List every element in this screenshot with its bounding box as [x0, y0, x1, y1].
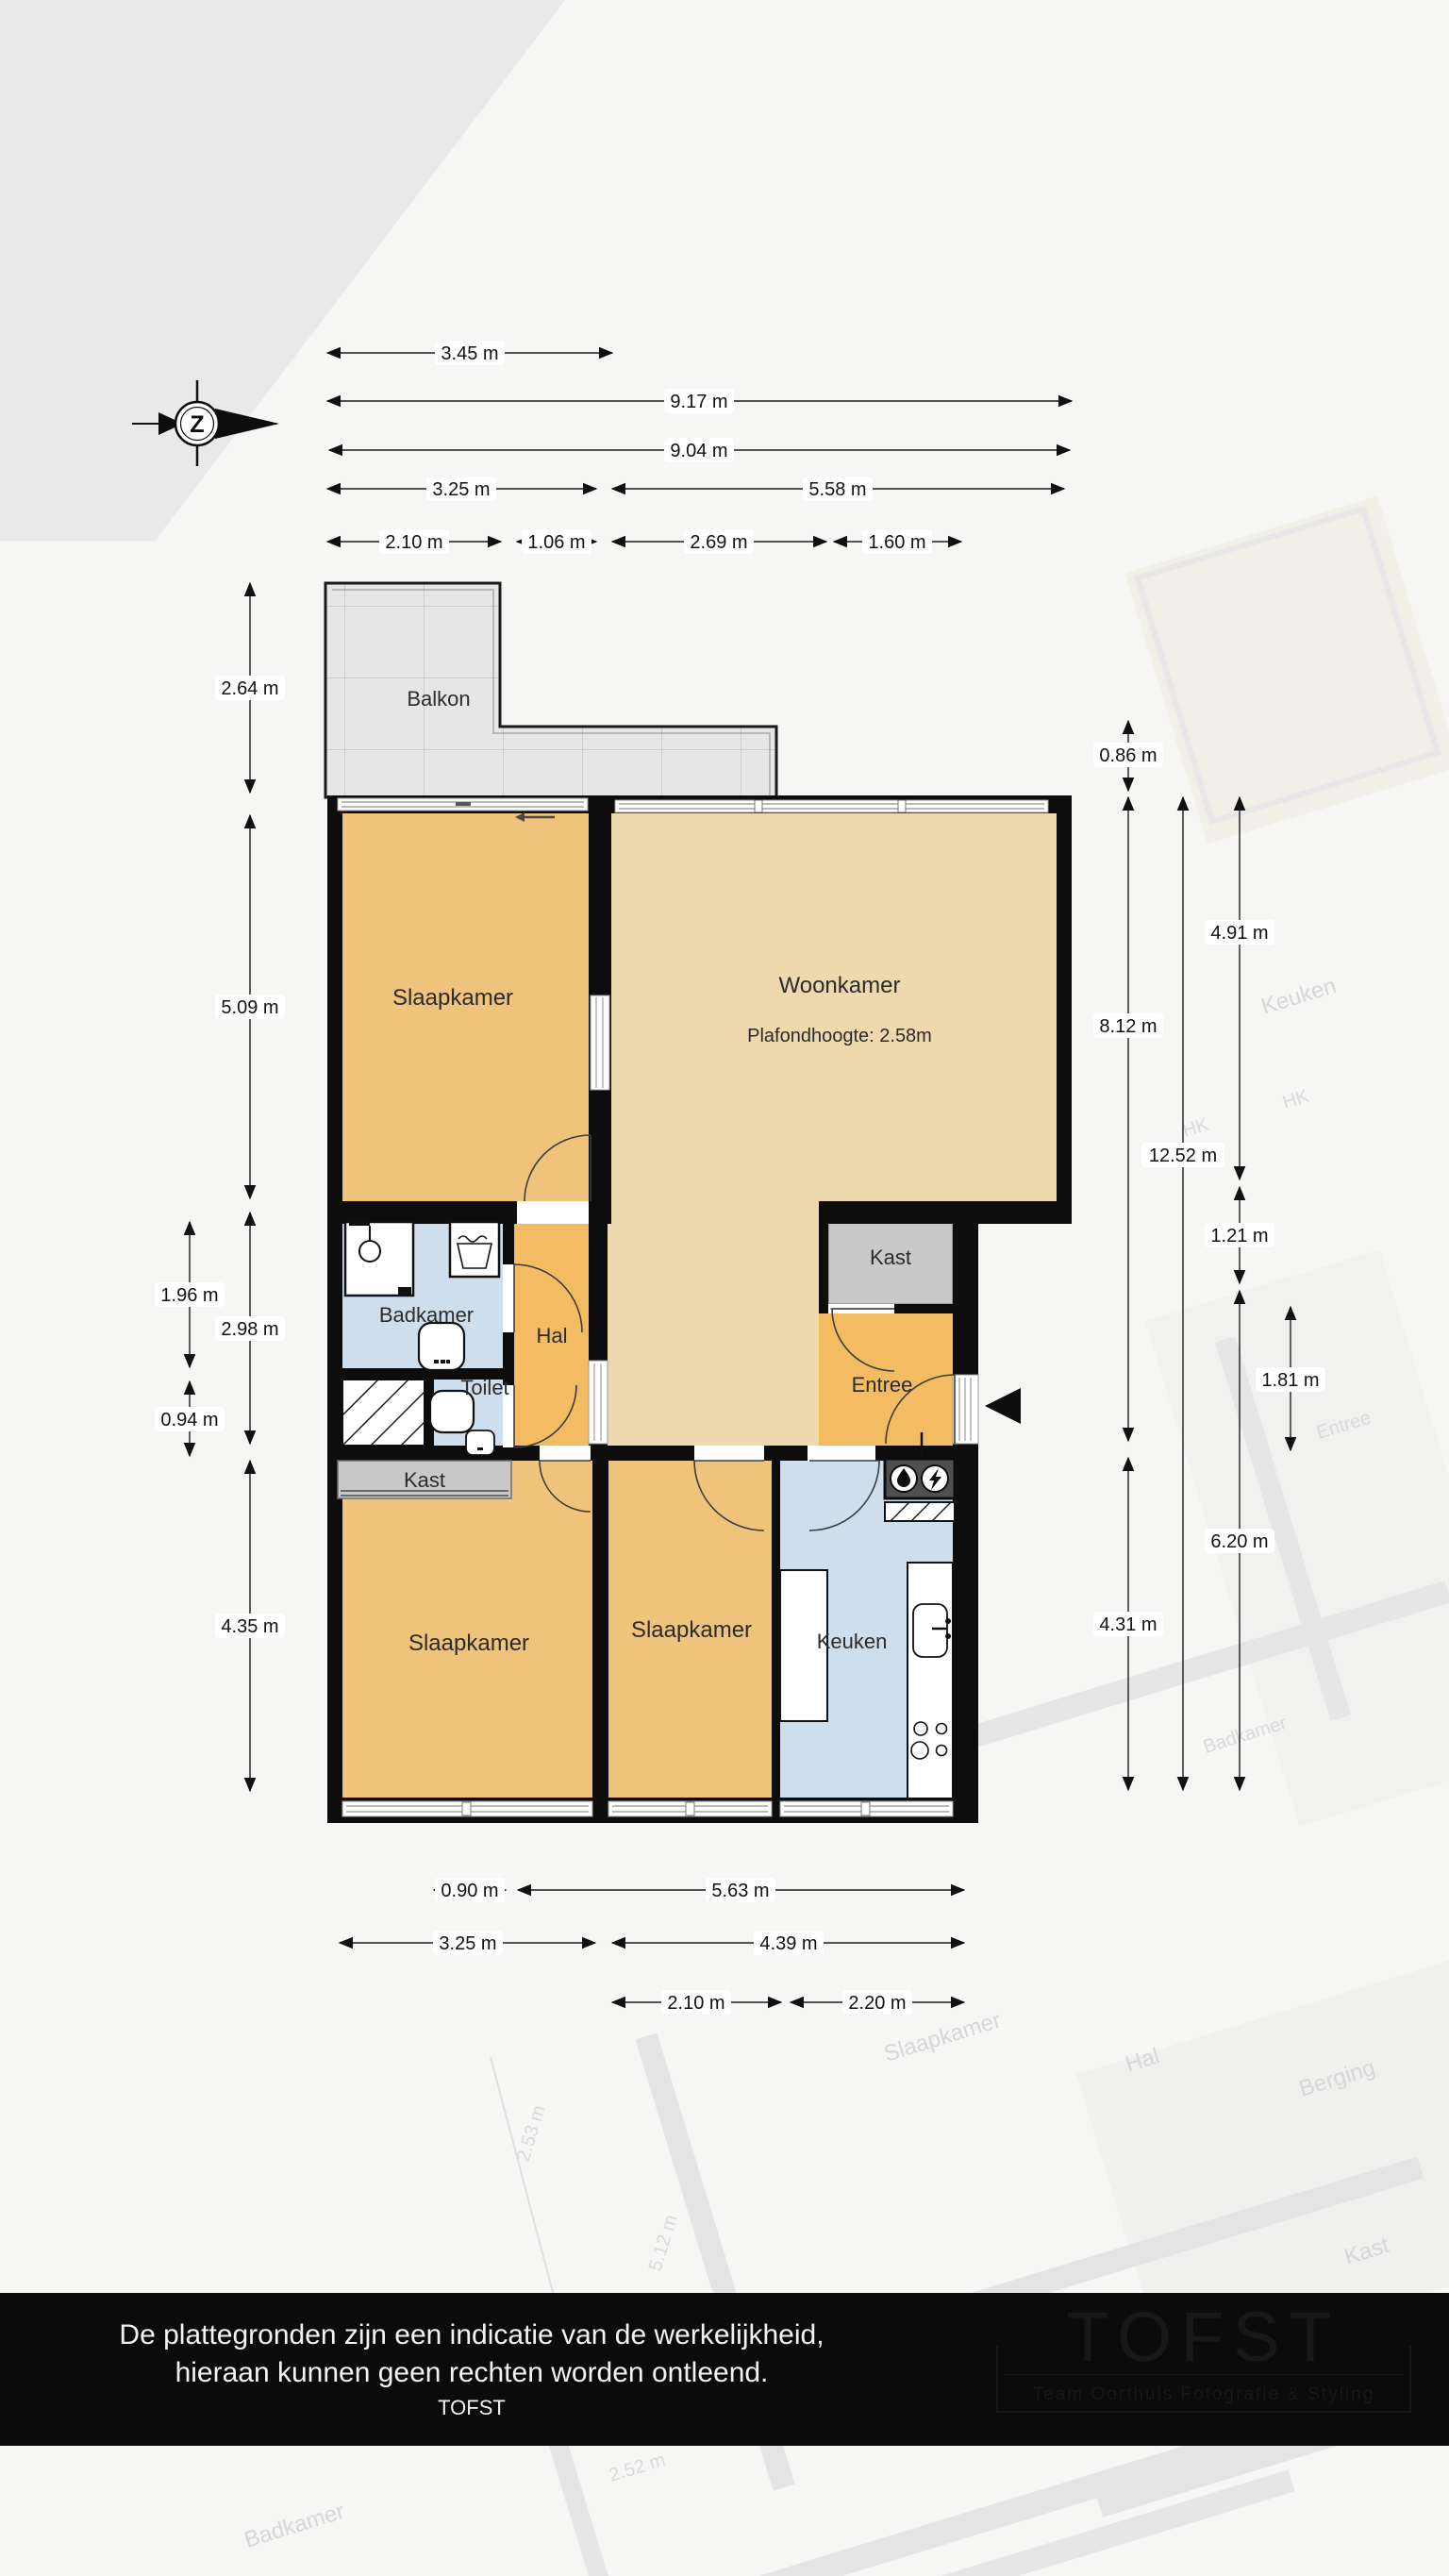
dim-label: 1.06 m — [522, 529, 591, 554]
watermark-label: HK — [1280, 1085, 1312, 1112]
tofst-logo-subtitle: Team Oorthuis Fotografie & Styling — [1006, 2374, 1402, 2405]
slider-handle — [456, 802, 471, 806]
dim-value: 4.31 m — [1099, 1614, 1157, 1635]
watermark-label: Badkamer — [241, 2499, 348, 2553]
dim-value: 2.98 m — [221, 1319, 278, 1340]
disclaimer-line-1: De plattegronden zijn een indicatie van … — [119, 2318, 824, 2352]
shower-icon — [345, 1219, 413, 1296]
dim-value: 4.39 m — [759, 1933, 817, 1954]
compass-icon: Z — [132, 380, 279, 466]
dim-value: 2.20 m — [848, 1993, 906, 2014]
dim-value: 6.20 m — [1210, 1531, 1268, 1552]
dim-label: 0.86 m — [1093, 743, 1163, 767]
electric-meter-icon — [922, 1465, 948, 1492]
dim-value: 2.69 m — [690, 532, 747, 553]
dim-value: 9.17 m — [670, 392, 727, 412]
room-label-entree: Entree — [852, 1373, 913, 1397]
dim-label: 8.12 m — [1093, 1013, 1163, 1038]
room-slaapkamer-2 — [342, 1461, 592, 1798]
room-balkon: Balkon — [325, 583, 776, 797]
room-label-balkon: Balkon — [407, 687, 470, 711]
room-label-badkamer: Badkamer — [379, 1303, 474, 1327]
dim-value: 1.06 m — [527, 532, 585, 553]
dim-label: 12.52 m — [1141, 1143, 1224, 1167]
water-meter-icon — [891, 1465, 917, 1492]
dim-value: 3.25 m — [432, 479, 490, 500]
dim-label: 3.25 m — [433, 1931, 503, 1955]
room-label-woonkamer-sub: Plafondhoogte: 2.58m — [747, 1026, 932, 1046]
room-label-kast-2: Kast — [870, 1246, 911, 1269]
room-label-woonkamer: Woonkamer — [779, 973, 901, 998]
watermark-label: HK — [1180, 1113, 1212, 1141]
room-label-hal: Hal — [536, 1324, 567, 1347]
dim-label: 4.31 m — [1093, 1612, 1163, 1636]
dim-label: 4.35 m — [215, 1614, 285, 1638]
room-label-slaapkamer-2: Slaapkamer — [408, 1631, 529, 1656]
sink-icon — [419, 1323, 464, 1370]
dim-label: 5.58 m — [803, 477, 873, 501]
dim-label: 4.39 m — [754, 1931, 824, 1955]
dim-label: 0.94 m — [155, 1407, 225, 1431]
shaft-hatched — [342, 1380, 425, 1446]
watermark-label: Badkamer — [1201, 1713, 1290, 1758]
shaft-hatched-small — [885, 1502, 955, 1521]
dim-label: 3.45 m — [435, 341, 505, 365]
dim-label: 2.69 m — [684, 529, 754, 554]
toilet-sink-icon — [466, 1430, 494, 1455]
dim-label: 9.04 m — [664, 438, 734, 462]
dim-label: 1.81 m — [1256, 1367, 1325, 1392]
room-label-slaapkamer-3: Slaapkamer — [631, 1617, 752, 1643]
watermark-label: 2.53 m — [513, 2103, 550, 2165]
dim-value: 9.04 m — [670, 441, 727, 461]
dim-value: 0.86 m — [1099, 745, 1157, 766]
dim-label: 9.17 m — [664, 389, 734, 413]
washer-icon — [450, 1222, 499, 1277]
dim-label: 6.20 m — [1205, 1529, 1274, 1553]
dim-label: 0.90 m — [435, 1878, 505, 1902]
dim-value: 12.52 m — [1149, 1146, 1217, 1166]
dim-value: 2.10 m — [667, 1993, 724, 2014]
dim-label: 1.60 m — [862, 529, 932, 554]
dim-label: 3.25 m — [426, 477, 496, 501]
dim-value: 3.25 m — [439, 1933, 496, 1954]
dim-value: 1.96 m — [160, 1285, 218, 1306]
dim-value: 2.10 m — [385, 532, 442, 553]
dim-label: 2.98 m — [215, 1316, 285, 1341]
dim-label: 2.10 m — [661, 1990, 731, 2015]
dim-value: 5.58 m — [808, 479, 866, 500]
dim-value: 1.81 m — [1261, 1370, 1319, 1391]
dim-value: 8.12 m — [1099, 1016, 1157, 1037]
dim-value: 1.60 m — [868, 532, 925, 553]
watermark-label: 5.12 m — [645, 2213, 682, 2274]
dim-label: 5.09 m — [215, 995, 285, 1019]
dim-label: 2.10 m — [379, 529, 449, 554]
dim-value: 4.91 m — [1210, 923, 1268, 944]
disclaimer-text-block: De plattegronden zijn een indicatie van … — [0, 2293, 943, 2446]
dim-label: 2.64 m — [215, 676, 285, 700]
dim-label: 5.63 m — [706, 1878, 775, 1902]
floorplan-canvas: Slaapkamer Hal Berging Kast Badkamer 2.5… — [0, 0, 1449, 2576]
dim-value: 5.63 m — [711, 1881, 769, 1901]
disclaimer-line-2: hieraan kunnen geen rechten worden ontle… — [175, 2356, 769, 2390]
dim-value: 2.64 m — [221, 678, 278, 699]
dim-label: 1.96 m — [155, 1282, 225, 1307]
room-label-toilet: Toilet — [460, 1376, 508, 1399]
dim-label: 4.91 m — [1205, 920, 1274, 945]
tofst-logo: TOFST Team Oorthuis Fotografie & Styling — [996, 2302, 1411, 2436]
dim-value: 3.45 m — [441, 343, 498, 364]
dim-value: 5.09 m — [221, 997, 278, 1018]
compass-letter: Z — [190, 411, 204, 438]
entrance-arrow-icon — [985, 1388, 1021, 1424]
watermark-label: Keuken — [1258, 973, 1340, 1020]
watermark-label: 2.52 m — [607, 2450, 668, 2486]
dim-value: 0.90 m — [441, 1881, 498, 1901]
disclaimer-line-3: TOFST — [438, 2396, 506, 2420]
watermark-label: Slaapkamer — [881, 2007, 1004, 2066]
dim-label: 2.20 m — [842, 1990, 912, 2015]
room-label-keuken: Keuken — [817, 1630, 888, 1653]
kitchen-counter-right — [908, 1563, 953, 1798]
dim-label: 1.21 m — [1205, 1223, 1274, 1247]
dim-value: 4.35 m — [221, 1616, 278, 1637]
room-label-slaapkamer-1: Slaapkamer — [392, 985, 513, 1011]
dim-value: 1.21 m — [1210, 1226, 1268, 1246]
room-label-kast-1: Kast — [404, 1468, 445, 1492]
kitchen-sink-icon — [913, 1604, 951, 1657]
dim-value: 0.94 m — [160, 1410, 218, 1430]
footer-disclaimer-bar: De plattegronden zijn een indicatie van … — [0, 2293, 1449, 2446]
